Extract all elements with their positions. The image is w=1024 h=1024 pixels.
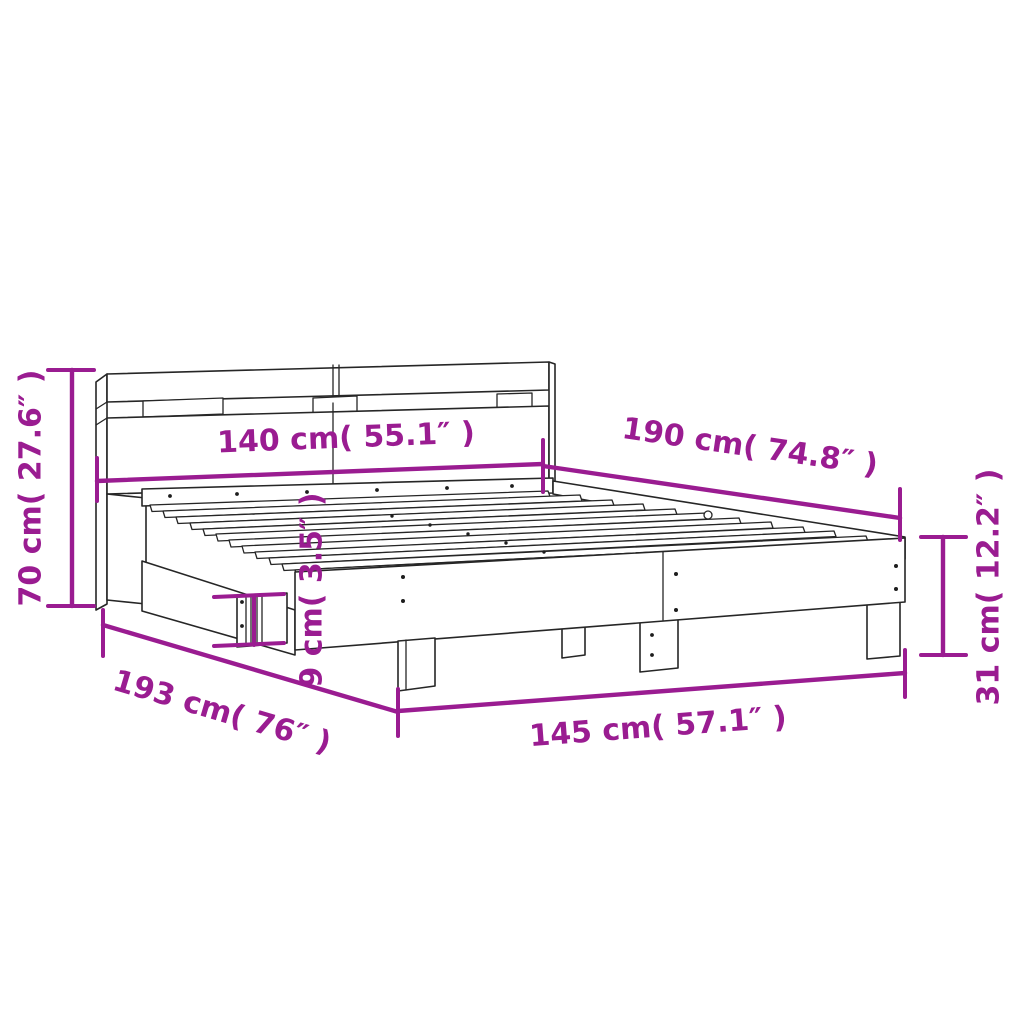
- bed-dimension-drawing: 70 cm( 27.6″ ) 140 cm( 55.1″ ) 190 cm( 7…: [0, 0, 1024, 1024]
- headboard-connector-block: [143, 398, 223, 417]
- dimension-label-rail-height: 9 cm( 3.5″ ): [295, 492, 330, 687]
- mid-front-leg-wide: [640, 615, 678, 672]
- dimension-label-frame-height: 31 cm( 12.2″ ): [972, 469, 1007, 706]
- headboard-top-board: [107, 362, 549, 402]
- dimension-headboard-height: 70 cm( 27.6″ ): [14, 370, 95, 607]
- dimension-label-frame-width: 145 cm( 57.1″ ): [528, 700, 788, 754]
- headboard-right-edge: [549, 362, 555, 482]
- foot-left-leg: [398, 638, 435, 691]
- dimension-label-bed-length: 190 cm( 74.8″ ): [620, 411, 880, 483]
- dimension-label-headboard-height: 70 cm( 27.6″ ): [14, 370, 49, 607]
- foot-right-leg: [867, 600, 900, 659]
- rail-bolt-hole: [704, 511, 712, 519]
- diagram-canvas: 70 cm( 27.6″ ) 140 cm( 55.1″ ) 190 cm( 7…: [0, 0, 1024, 1024]
- headboard-left-leg: [107, 494, 146, 604]
- dimension-frame-height: 31 cm( 12.2″ ): [921, 469, 1007, 706]
